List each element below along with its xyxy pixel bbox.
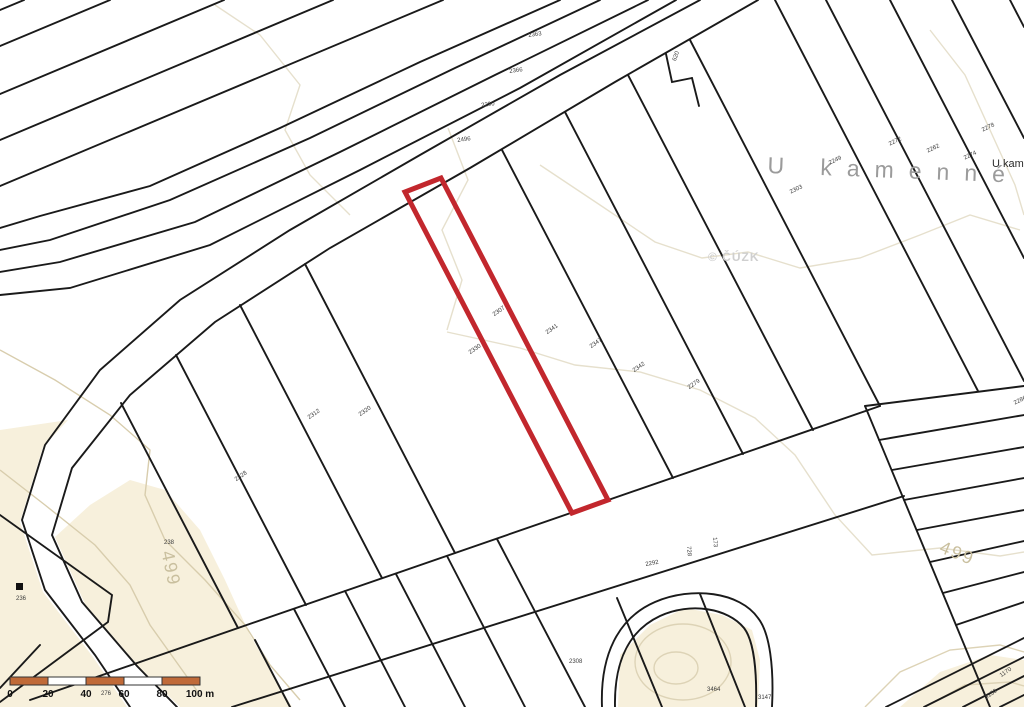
- scale-tick-label: 0: [7, 689, 13, 700]
- parcel-number-label: 276: [101, 691, 111, 697]
- scale-tick-label: 20: [42, 689, 53, 700]
- scale-tick-label: 60: [118, 689, 129, 700]
- parcel-number-label: 236: [16, 596, 26, 602]
- parcel-number-label: 2308: [569, 659, 582, 665]
- corner-place-name-label: U kam: [992, 158, 1024, 170]
- parcel-number-label: 3147: [758, 695, 771, 701]
- building-footprint: [16, 583, 23, 590]
- parcel-number-label: 728: [685, 546, 692, 557]
- parcel-number-label: 173: [711, 537, 718, 548]
- cadastral-map-canvas[interactable]: U kamenné U kam © ČÚZK 499499 2363236622…: [0, 0, 1024, 707]
- map-graphics: [0, 0, 1024, 707]
- terrain-fills: [0, 420, 1024, 707]
- scale-tick-label: 100 m: [186, 689, 214, 700]
- parcel-number-label: 3464: [707, 687, 720, 693]
- copyright-watermark: © ČÚZK: [708, 250, 760, 264]
- parcel-number-label: 238: [164, 540, 174, 546]
- scale-bar: [10, 677, 200, 685]
- scale-tick-label: 40: [80, 689, 91, 700]
- scale-tick-label: 80: [156, 689, 167, 700]
